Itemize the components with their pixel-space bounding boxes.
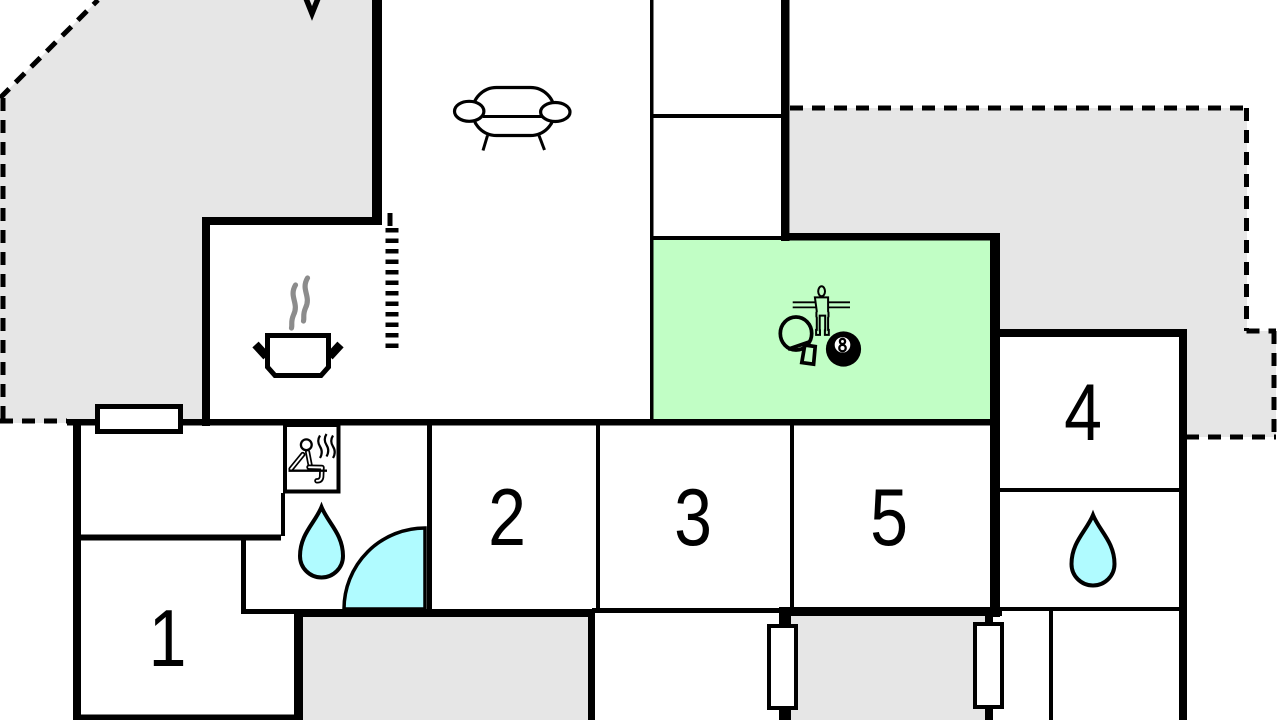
svg-text:4: 4: [1064, 366, 1102, 457]
svg-text:2: 2: [488, 471, 526, 562]
svg-text:1: 1: [149, 592, 187, 683]
svg-text:5: 5: [870, 471, 908, 562]
svg-text:3: 3: [674, 471, 712, 562]
